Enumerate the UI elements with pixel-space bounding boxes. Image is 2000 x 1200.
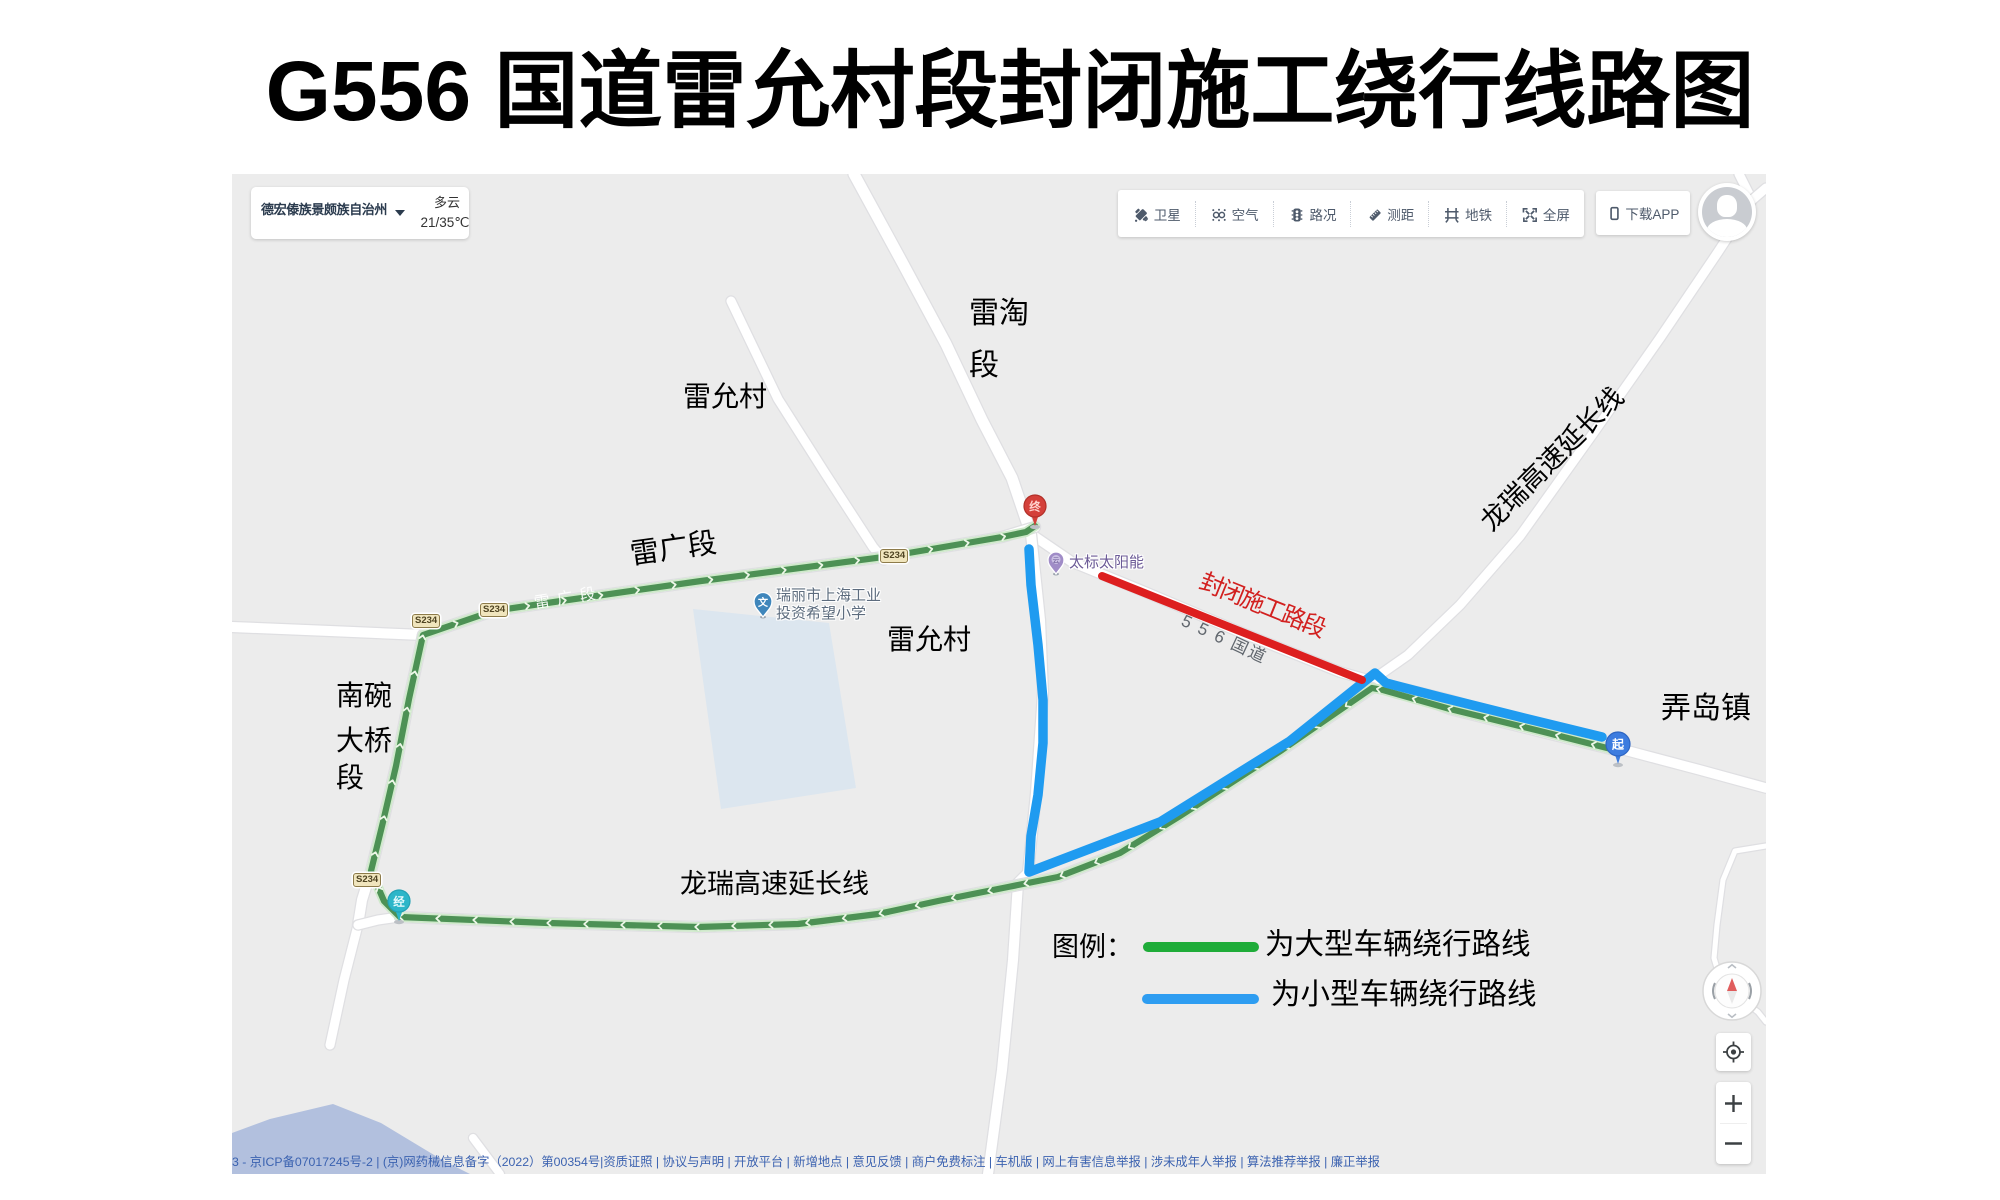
svg-text:终: 终 (1029, 500, 1041, 514)
svg-text:起: 起 (1611, 737, 1625, 752)
svg-text:文: 文 (758, 596, 769, 609)
svg-text:经: 经 (393, 895, 405, 909)
svg-text:云: 云 (1053, 557, 1060, 565)
